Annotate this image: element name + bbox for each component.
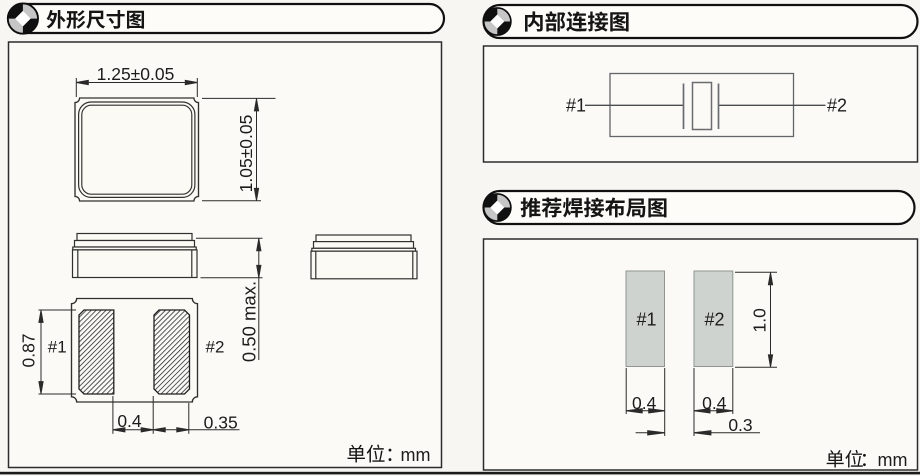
- svg-text:#1: #1: [566, 96, 586, 116]
- svg-text:mm: mm: [878, 450, 908, 470]
- svg-text:#1: #1: [48, 338, 67, 357]
- svg-text:#2: #2: [827, 96, 847, 116]
- svg-text:0.4: 0.4: [632, 393, 657, 413]
- svg-text:0.35: 0.35: [204, 413, 238, 433]
- svg-text:0.4: 0.4: [702, 393, 727, 413]
- svg-text:0.4: 0.4: [117, 411, 142, 431]
- svg-text:#2: #2: [705, 310, 725, 330]
- svg-text:1.05±0.05: 1.05±0.05: [236, 115, 256, 193]
- svg-text:mm: mm: [401, 445, 431, 465]
- svg-text:#2: #2: [206, 338, 225, 357]
- svg-text:0.50 max.: 0.50 max.: [239, 281, 260, 362]
- svg-text:1.0: 1.0: [750, 308, 770, 333]
- svg-text:#1: #1: [637, 310, 657, 330]
- svg-text:0.3: 0.3: [728, 415, 752, 435]
- svg-text:1.25±0.05: 1.25±0.05: [97, 64, 175, 84]
- svg-text:0.87: 0.87: [19, 333, 39, 367]
